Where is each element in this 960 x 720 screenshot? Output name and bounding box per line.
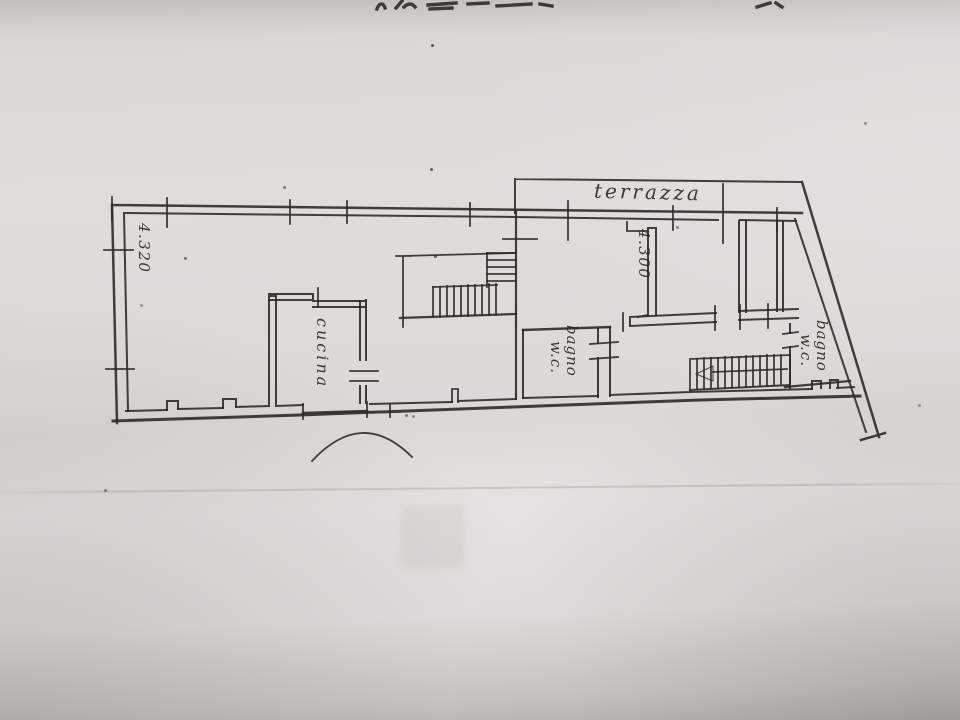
- terrace-label: terrazza: [594, 179, 702, 206]
- curved-pen-stroke: [312, 433, 412, 461]
- bathroom-center-label: bagno w.c.: [548, 325, 580, 377]
- dimension-left-label: 4.320: [135, 223, 153, 273]
- cropped-handwriting-strokes: [377, 1, 782, 9]
- kitchen-label: cucina: [313, 318, 332, 389]
- outer-walls: [112, 182, 885, 440]
- floor-plan-photo: terrazza 4.320 4.300 cucina bagno w.c. b…: [0, 0, 960, 720]
- dimension-right-label: 4.300: [635, 229, 653, 279]
- bathroom-right-label: bagno w.c.: [798, 320, 830, 372]
- bathroom-center-label-line1: bagno: [564, 325, 580, 377]
- secondary-staircase: [690, 355, 790, 390]
- bathroom-right-label-line1: bagno: [814, 320, 830, 372]
- bathroom-right-label-line2: w.c.: [798, 320, 814, 372]
- main-staircase: [396, 253, 516, 327]
- bathroom-center-label-line2: w.c.: [548, 325, 564, 377]
